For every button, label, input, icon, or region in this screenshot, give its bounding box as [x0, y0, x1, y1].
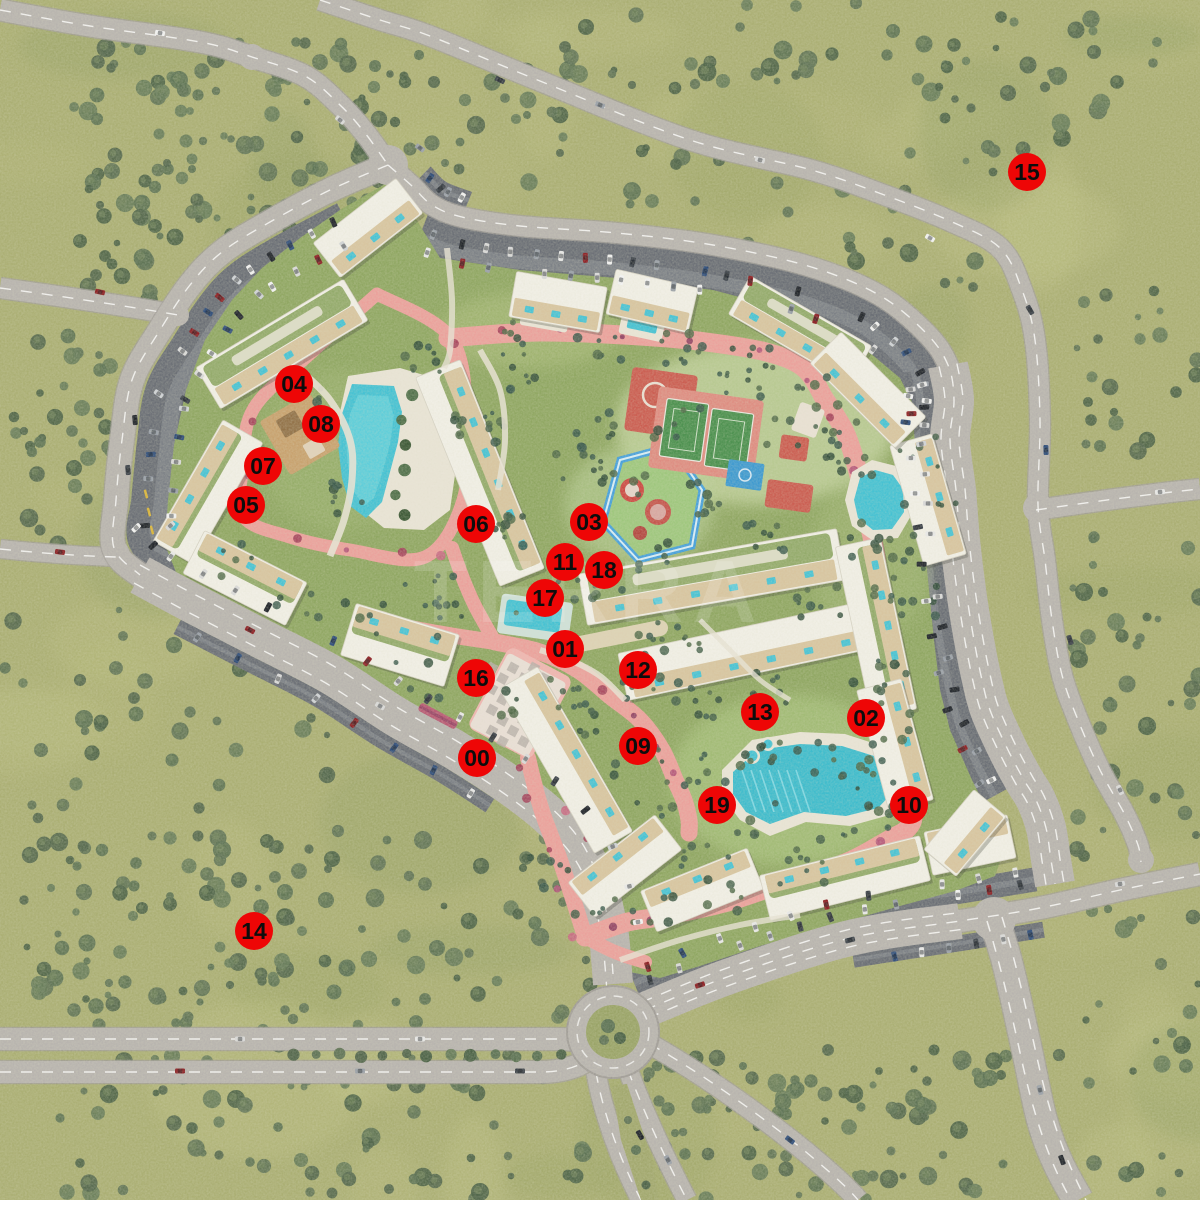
svg-text:TERRA: TERRA — [413, 542, 766, 641]
svg-text:03: 03 — [576, 509, 602, 535]
svg-text:18: 18 — [591, 557, 617, 583]
svg-text:11: 11 — [553, 549, 578, 575]
svg-text:07: 07 — [250, 453, 276, 479]
svg-text:15: 15 — [1014, 159, 1040, 185]
svg-text:19: 19 — [704, 792, 730, 818]
svg-text:01: 01 — [552, 636, 578, 662]
svg-text:09: 09 — [625, 733, 651, 759]
svg-text:04: 04 — [281, 371, 307, 397]
svg-text:12: 12 — [625, 657, 651, 683]
svg-text:16: 16 — [463, 665, 489, 691]
svg-text:00: 00 — [464, 745, 490, 771]
svg-text:06: 06 — [463, 511, 489, 537]
svg-text:14: 14 — [241, 918, 267, 944]
svg-text:02: 02 — [853, 705, 879, 731]
svg-text:17: 17 — [532, 585, 558, 611]
svg-text:13: 13 — [747, 699, 773, 725]
svg-text:08: 08 — [308, 411, 334, 437]
svg-text:10: 10 — [896, 792, 922, 818]
svg-text:05: 05 — [233, 492, 259, 518]
